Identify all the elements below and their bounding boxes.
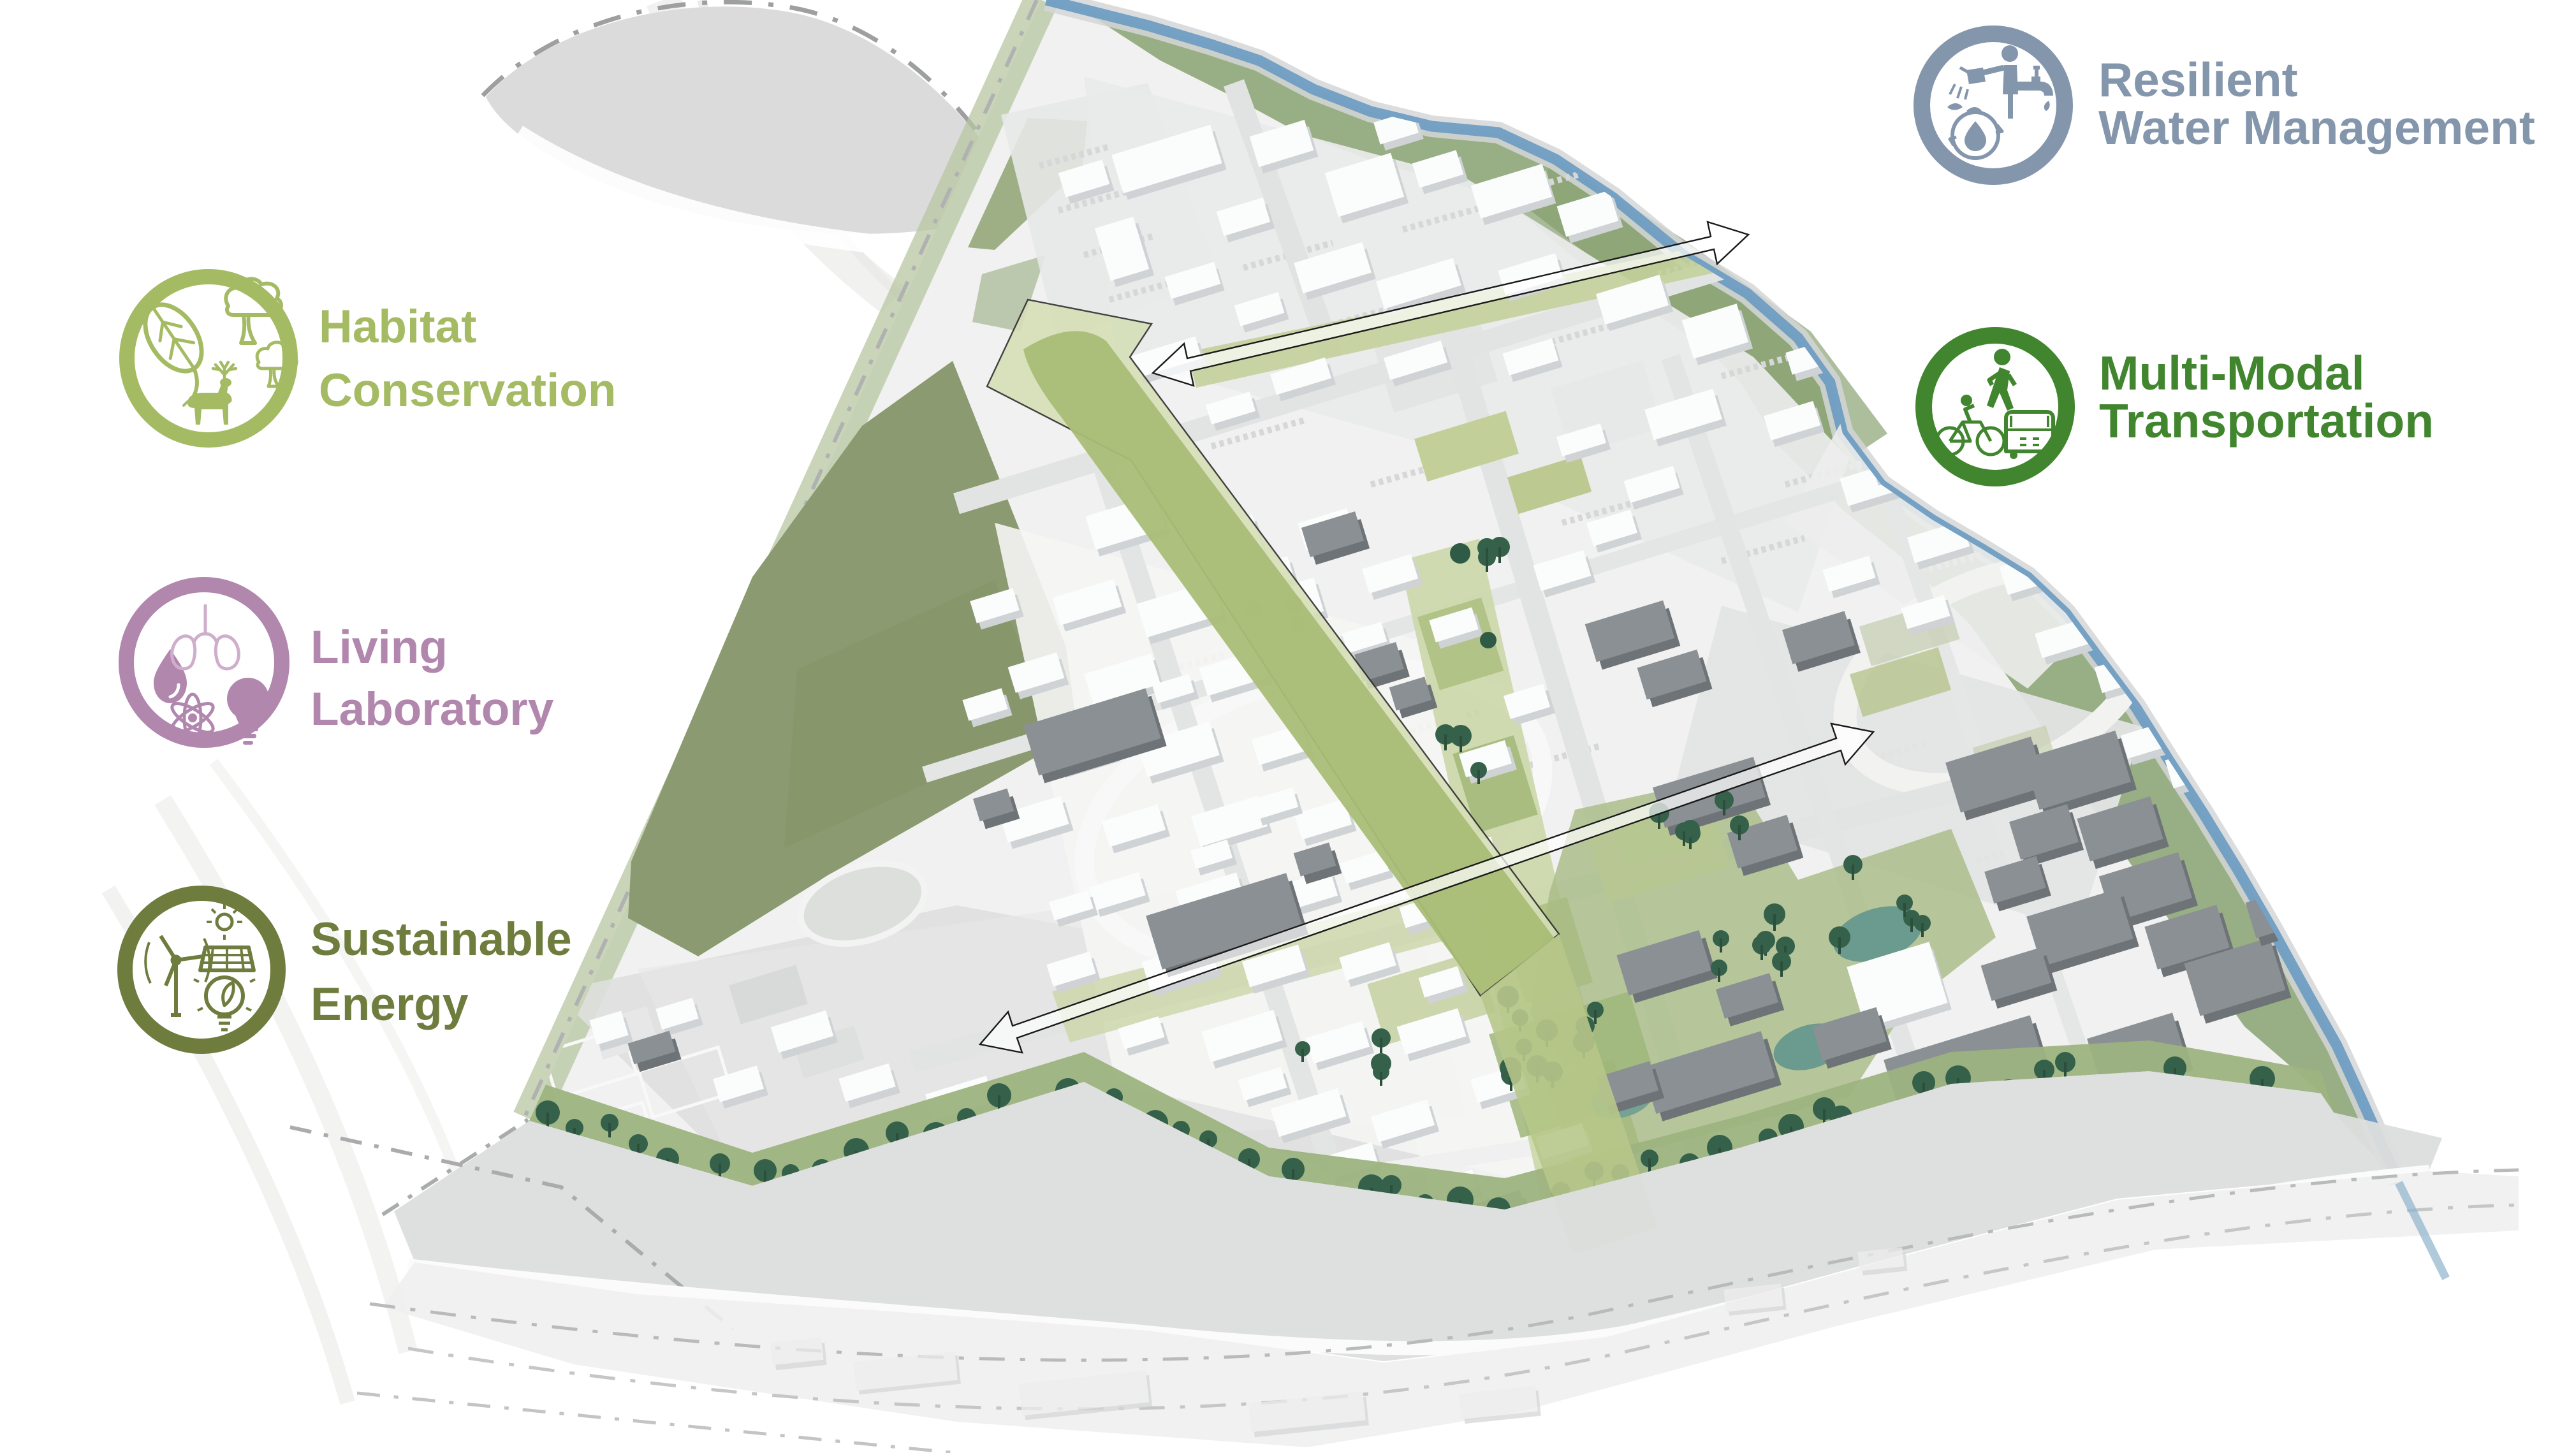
svg-text:Resilient: Resilient bbox=[2098, 53, 2298, 106]
svg-text:Transportation: Transportation bbox=[2099, 394, 2434, 448]
svg-text:Living: Living bbox=[311, 622, 448, 673]
svg-text:Energy: Energy bbox=[311, 979, 469, 1030]
svg-text:Water Management: Water Management bbox=[2098, 101, 2535, 154]
svg-text:Sustainable: Sustainable bbox=[311, 914, 572, 965]
svg-text:Conservation: Conservation bbox=[319, 365, 616, 416]
svg-text:Laboratory: Laboratory bbox=[311, 683, 554, 735]
svg-text:Multi-Modal: Multi-Modal bbox=[2099, 346, 2365, 400]
svg-text:Habitat: Habitat bbox=[319, 301, 476, 353]
